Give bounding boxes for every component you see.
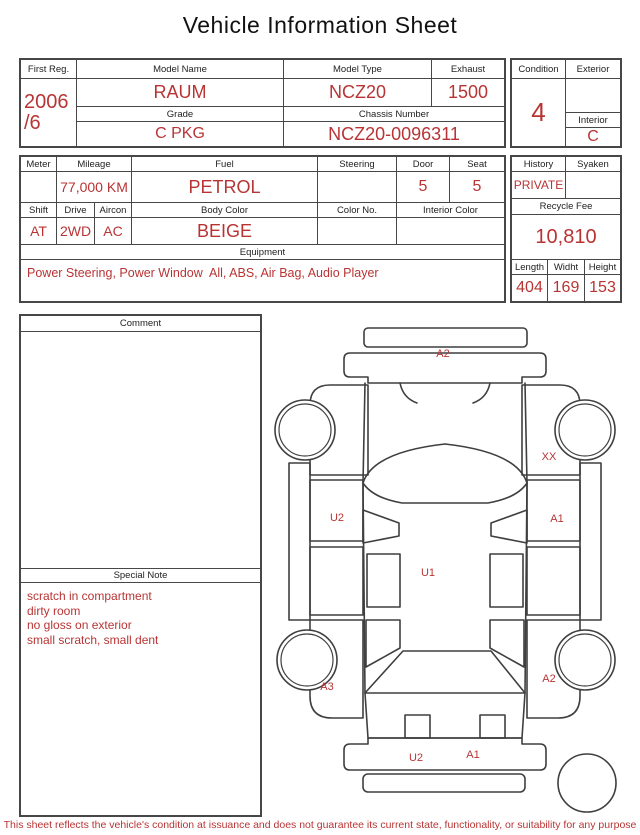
special-note-line: dirty room bbox=[27, 604, 254, 619]
right-front-wheel bbox=[555, 400, 615, 460]
shift-label: Shift bbox=[21, 203, 57, 218]
steering-label: Steering bbox=[318, 157, 397, 172]
rear-plate-strip bbox=[363, 774, 525, 792]
height-value: 153 bbox=[585, 275, 620, 301]
first-reg-value: 2006 /6 bbox=[21, 79, 77, 146]
vehicle-spec-table: Meter Mileage Fuel Steering Door Seat 77… bbox=[19, 155, 506, 303]
model-name-value: RAUM bbox=[77, 79, 284, 107]
model-type-label: Model Type bbox=[284, 60, 432, 79]
recycle-fee-label: Recycle Fee bbox=[512, 199, 620, 215]
condition-table: Condition Exterior 4 Interior C bbox=[510, 58, 622, 148]
left-sill bbox=[289, 463, 310, 620]
first-reg-label: First Reg. bbox=[21, 60, 77, 79]
condition-label: Condition bbox=[512, 60, 566, 79]
left-headlight-arc bbox=[400, 383, 417, 403]
fuel-label: Fuel bbox=[132, 157, 318, 172]
model-name-label: Model Name bbox=[77, 60, 284, 79]
drive-label: Drive bbox=[57, 203, 95, 218]
width-value: 169 bbox=[548, 275, 585, 301]
right-inner-door-panel bbox=[490, 554, 523, 607]
condition-value: 4 bbox=[512, 79, 566, 146]
grade-label: Grade bbox=[77, 107, 284, 122]
right-rear-door bbox=[527, 547, 580, 615]
steering-value bbox=[318, 172, 397, 203]
body-color-value: BEIGE bbox=[132, 218, 318, 245]
special-note-line: no gloss on exterior bbox=[27, 618, 254, 633]
damage-label-rear-bumper-right: A1 bbox=[466, 749, 479, 761]
equipment-value: Power Steering, Power Window All, ABS, A… bbox=[21, 260, 504, 301]
left-front-door bbox=[310, 480, 363, 541]
comment-box: Comment Special Note scratch in compartm… bbox=[19, 314, 262, 817]
damage-label-left-rear-wheel: A3 bbox=[320, 681, 333, 693]
door-label: Door bbox=[397, 157, 450, 172]
damage-label-right-rear-fender: A2 bbox=[542, 673, 555, 685]
exterior-value bbox=[566, 79, 620, 113]
shift-value: AT bbox=[21, 218, 57, 245]
length-label: Length bbox=[512, 260, 548, 275]
interior-label: Interior bbox=[566, 113, 620, 128]
mileage-value: 77,000 KM bbox=[57, 172, 132, 203]
aircon-value: AC bbox=[95, 218, 132, 245]
history-value: PRIVATE bbox=[512, 172, 566, 199]
recycle-fee-value: 10,810 bbox=[512, 215, 620, 260]
width-label: Widht bbox=[548, 260, 585, 275]
door-value: 5 bbox=[397, 172, 450, 203]
damage-label-cabin-center: U1 bbox=[421, 567, 435, 579]
chassis-number-label: Chassis Number bbox=[284, 107, 504, 122]
mileage-label: Mileage bbox=[57, 157, 132, 172]
meter-label: Meter bbox=[21, 157, 57, 172]
special-note-label: Special Note bbox=[21, 568, 260, 583]
right-quarter-panel bbox=[490, 620, 524, 667]
special-note-line: scratch in compartment bbox=[27, 589, 254, 604]
special-note-line: small scratch, small dent bbox=[27, 633, 254, 648]
windshield bbox=[363, 444, 527, 503]
right-sill bbox=[580, 463, 601, 620]
length-value: 404 bbox=[512, 275, 548, 301]
history-fee-table: History Syaken PRIVATE Recycle Fee 10,81… bbox=[510, 155, 622, 303]
fuel-value: PETROL bbox=[132, 172, 318, 203]
damage-label-rear-bumper-left: U2 bbox=[409, 752, 423, 764]
left-rear-door bbox=[310, 547, 363, 615]
color-no-label: Color No. bbox=[318, 203, 397, 218]
disclaimer-text: This sheet reflects the vehicle's condit… bbox=[0, 819, 640, 831]
right-tail-lamp bbox=[480, 715, 505, 738]
right-front-door bbox=[527, 480, 580, 541]
damage-label-right-front-fender: XX bbox=[542, 451, 557, 463]
syaken-label: Syaken bbox=[566, 157, 620, 172]
drive-value: 2WD bbox=[57, 218, 95, 245]
vehicle-identity-table: First Reg. Model Name Model Type Exhaust… bbox=[19, 58, 506, 148]
syaken-value bbox=[566, 172, 620, 199]
interior-value: C bbox=[566, 128, 620, 146]
car-diagram: A2XXU2A1U1A3A2U2A1 bbox=[270, 315, 640, 835]
left-tail-lamp bbox=[405, 715, 430, 738]
front-plate-strip bbox=[364, 328, 527, 347]
seat-value: 5 bbox=[450, 172, 504, 203]
equipment-label: Equipment bbox=[21, 245, 504, 260]
grade-value: C PKG bbox=[77, 122, 284, 146]
spare-wheel bbox=[558, 754, 616, 812]
page-title: Vehicle Information Sheet bbox=[0, 12, 640, 39]
left-inner-door-panel bbox=[367, 554, 400, 607]
color-no-value bbox=[318, 218, 397, 245]
left-front-wheel bbox=[275, 400, 335, 460]
right-rear-wheel bbox=[555, 630, 615, 690]
exterior-label: Exterior bbox=[566, 60, 620, 79]
right-dash-trim bbox=[491, 510, 527, 543]
history-label: History bbox=[512, 157, 566, 172]
body-color-label: Body Color bbox=[132, 203, 318, 218]
first-reg-month: /6 bbox=[24, 113, 41, 134]
vehicle-information-sheet: Vehicle Information Sheet First Reg. Mod… bbox=[0, 0, 640, 835]
first-reg-year: 2006 bbox=[24, 92, 69, 113]
damage-label-left-front-door: U2 bbox=[330, 512, 344, 524]
right-headlight-arc bbox=[473, 383, 490, 403]
rear-bumper bbox=[344, 738, 546, 770]
interior-color-label: Interior Color bbox=[397, 203, 504, 218]
rear-window bbox=[365, 651, 525, 693]
special-note-body: scratch in compartment dirty room no glo… bbox=[21, 583, 260, 815]
comment-label: Comment bbox=[21, 316, 260, 332]
exhaust-label: Exhaust bbox=[432, 60, 504, 79]
chassis-number-value: NCZ20-0096311 bbox=[284, 122, 504, 146]
seat-label: Seat bbox=[450, 157, 504, 172]
left-dash-trim bbox=[363, 510, 399, 543]
interior-color-value bbox=[397, 218, 504, 245]
model-type-value: NCZ20 bbox=[284, 79, 432, 107]
comment-body bbox=[21, 332, 260, 568]
damage-label-right-front-door: A1 bbox=[550, 513, 563, 525]
exhaust-value: 1500 bbox=[432, 79, 504, 107]
aircon-label: Aircon bbox=[95, 203, 132, 218]
damage-label-front-bumper: A2 bbox=[436, 348, 449, 360]
height-label: Height bbox=[585, 260, 620, 275]
meter-value bbox=[21, 172, 57, 203]
